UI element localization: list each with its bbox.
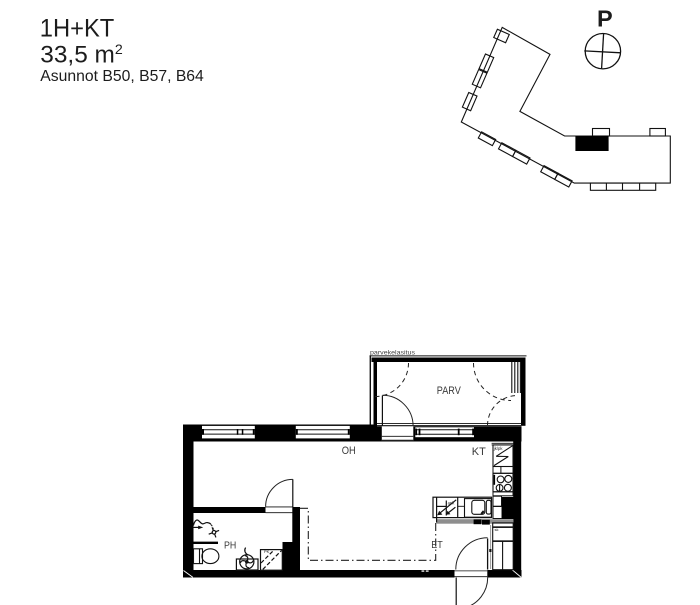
svg-text:apk: apk [448,501,456,506]
svg-text:PARV: PARV [437,385,462,397]
svg-text:P: P [597,5,613,31]
svg-text:PK: PK [264,549,270,554]
svg-text:jk/pk: jk/pk [493,446,504,451]
svg-text:ET: ET [431,540,443,551]
svg-text:sk: sk [495,527,499,532]
svg-text:KT: KT [472,446,486,458]
svg-text:Asunnot B50, B57, B64: Asunnot B50, B57, B64 [40,68,204,85]
svg-text:PH: PH [224,540,236,551]
svg-text:33,5 m2: 33,5 m2 [40,41,123,68]
svg-text:1H+KT: 1H+KT [40,14,115,42]
svg-text:parvekelasitus: parvekelasitus [370,349,416,356]
svg-text:OH: OH [342,445,356,457]
